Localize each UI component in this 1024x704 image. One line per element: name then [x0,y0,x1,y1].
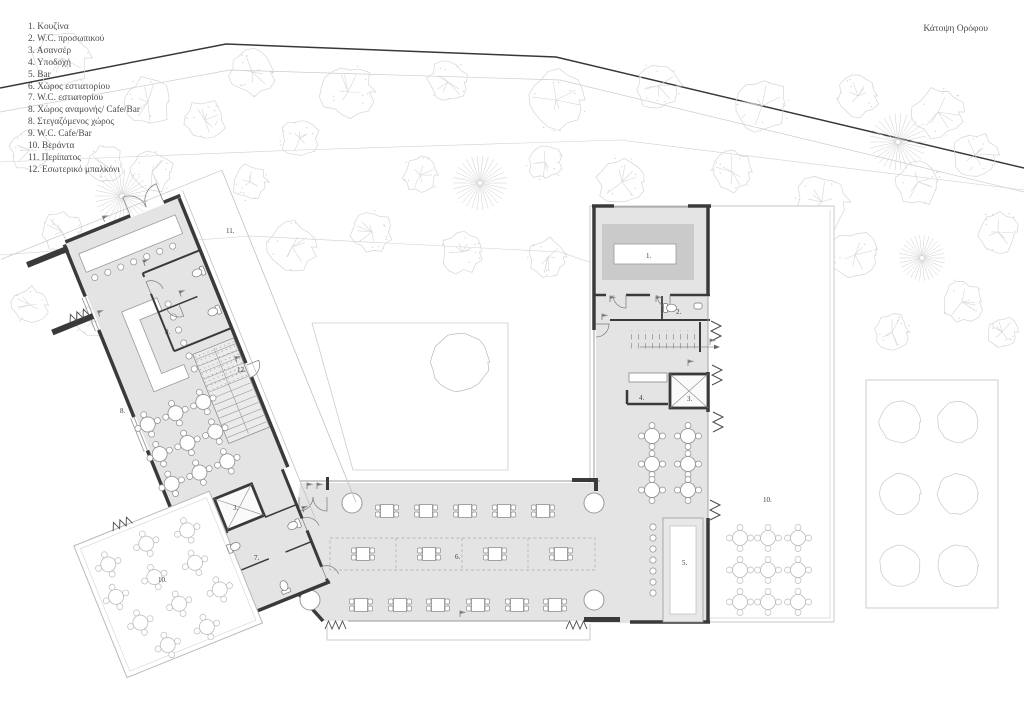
room-label-kitchen: 1. [646,252,652,260]
room-label-terrace-right: 10. [763,496,772,504]
legend-item: 5. Bar [28,70,140,82]
room-label-cafe-bar: 8. [120,407,126,415]
legend-item: 9. W.C. Cafe/Bar [28,129,140,141]
room-label-terrace-left: 10. [158,576,167,584]
legend-item: 11. Περίπατος [28,153,140,165]
legend-item: 6. Χώρος εστιατορίου [28,82,140,94]
drawing-title: Κάτοψη Ορόφου [923,24,988,34]
room-label-dining-hall: 6. [455,553,461,561]
room-label-elevator-left: 3. [233,504,239,512]
legend-item: 7. W.C. εστιατορίου [28,93,140,105]
legend-item: 10. Βεράντα [28,141,140,153]
site-boundary-line [0,44,1024,168]
room-label-inner-balcony: 12. [237,366,246,374]
room-label-elevator-right: 3. [687,395,693,403]
drawing-sheet: 1. 2. 3. 4. 5. 6. 7. 8. 9. 10. 10. 11. 1… [0,0,1024,704]
courtyard [312,323,508,470]
building-plan [0,159,998,678]
legend-item: 8. Στεγαζόμενος χώρος [28,117,140,129]
room-label-wc-cafebar: 9. [165,328,171,336]
legend-item: 12. Εσωτερικό μπαλκόνι [28,165,140,177]
room-label-wc-staff: 2. [676,308,682,316]
legend-item: 3. Ασανσέρ [28,46,140,58]
floor-plan-drawing: 1. 2. 3. 4. 5. 6. 7. 8. 9. 10. 10. 11. 1… [0,0,1024,704]
legend-item: 1. Κουζίνα [28,22,140,34]
legend-item: 2. W.C. προσωπικού [28,34,140,46]
legend-item: 4. Υποδοχή [28,58,140,70]
room-label-reception: 4. [639,394,645,402]
legend-item: 8. Χώρος αναμονής/ Cafe/Bar [28,105,140,117]
room-label-bar: 5. [682,559,688,567]
room-label-wc-restaurant: 7. [254,554,260,562]
room-label-walkway: 11. [226,227,235,235]
legend: 1. Κουζίνα 2. W.C. προσωπικού 3. Ασανσέρ… [28,22,140,177]
